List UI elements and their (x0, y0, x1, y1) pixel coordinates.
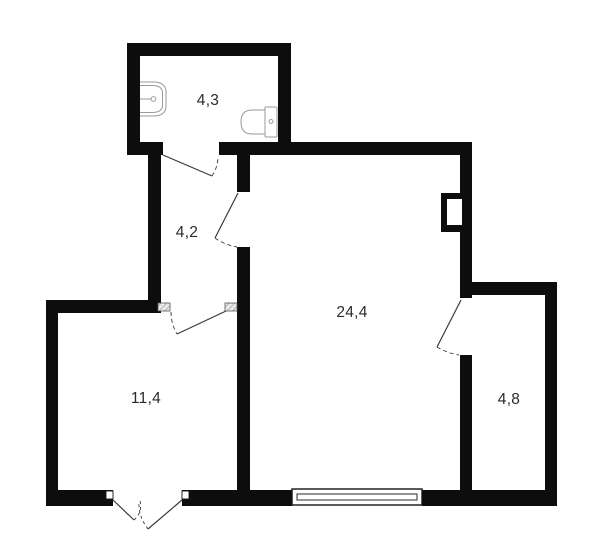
wall-segment (46, 300, 158, 313)
room-area-label: 4,8 (498, 391, 520, 409)
wall-segment (545, 282, 557, 506)
wall-niche-hole (447, 199, 462, 225)
wall-segment (182, 490, 292, 506)
window-icon (292, 489, 422, 505)
wall-segment (460, 355, 472, 490)
door-swing-hall-main (215, 193, 238, 247)
wall-segment (127, 43, 140, 155)
walls (46, 43, 557, 506)
jamb-block (182, 491, 189, 499)
floor-plan-svg (0, 0, 600, 560)
wall-segment (278, 43, 291, 143)
floor-plan: 4,3 4,2 24,4 11,4 4,8 (0, 0, 600, 560)
door-swing-room (171, 311, 226, 334)
wall-segment (148, 142, 161, 313)
door-swing-entrance (113, 500, 182, 529)
wall-segment (237, 247, 250, 490)
entrance-jambs (106, 491, 189, 499)
room-area-label: 4,2 (176, 224, 198, 242)
wall-segment (472, 282, 557, 295)
door-swing-bathroom (163, 155, 218, 176)
wall-segment (422, 490, 557, 506)
wall-segment (237, 155, 250, 192)
threshold-right (225, 303, 237, 311)
toilet-icon (241, 107, 277, 137)
room-area-label: 11,4 (131, 390, 161, 408)
door-swings (113, 155, 461, 529)
sink-icon (140, 82, 166, 116)
jamb-block (106, 491, 113, 499)
threshold-left (158, 303, 170, 311)
room-area-label: 4,3 (197, 92, 219, 110)
room-area-label: 24,4 (336, 304, 367, 322)
wall-segment (127, 43, 291, 56)
door-threshold-hatch (158, 303, 237, 311)
wall-segment (46, 300, 58, 506)
door-swing-balcony (437, 300, 461, 355)
wall-segment (219, 142, 472, 155)
wall-segment (46, 490, 113, 506)
